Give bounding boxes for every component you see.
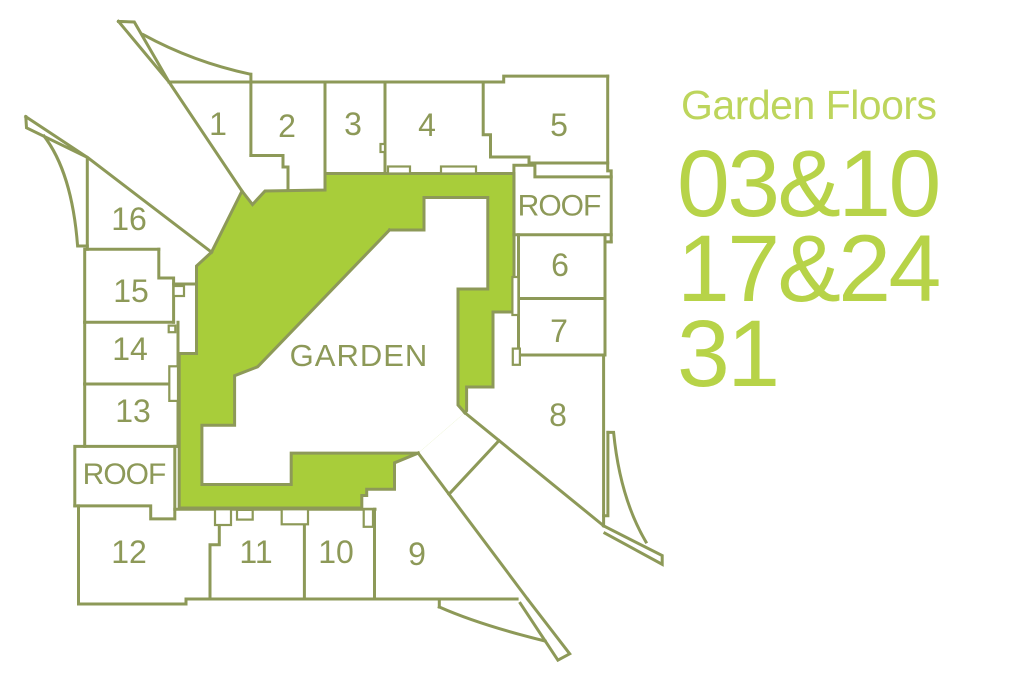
svg-text:12: 12	[111, 534, 147, 570]
svg-text:5: 5	[550, 107, 568, 143]
svg-text:31: 31	[677, 301, 777, 407]
svg-text:9: 9	[408, 536, 426, 572]
svg-text:14: 14	[112, 331, 148, 367]
svg-text:3: 3	[344, 106, 362, 142]
svg-text:ROOF: ROOF	[83, 458, 166, 491]
svg-text:4: 4	[418, 107, 436, 143]
svg-text:1: 1	[209, 106, 227, 142]
svg-text:16: 16	[111, 201, 147, 237]
svg-text:10: 10	[318, 534, 354, 570]
svg-text:ROOF: ROOF	[518, 190, 601, 223]
svg-text:7: 7	[550, 313, 568, 349]
svg-text:13: 13	[115, 393, 151, 429]
svg-text:11: 11	[239, 534, 272, 570]
svg-text:8: 8	[549, 397, 567, 433]
svg-text:6: 6	[551, 247, 569, 283]
svg-text:Garden Floors: Garden Floors	[681, 82, 937, 128]
svg-text:15: 15	[113, 273, 149, 309]
svg-text:2: 2	[278, 108, 296, 144]
svg-text:GARDEN: GARDEN	[290, 338, 429, 373]
